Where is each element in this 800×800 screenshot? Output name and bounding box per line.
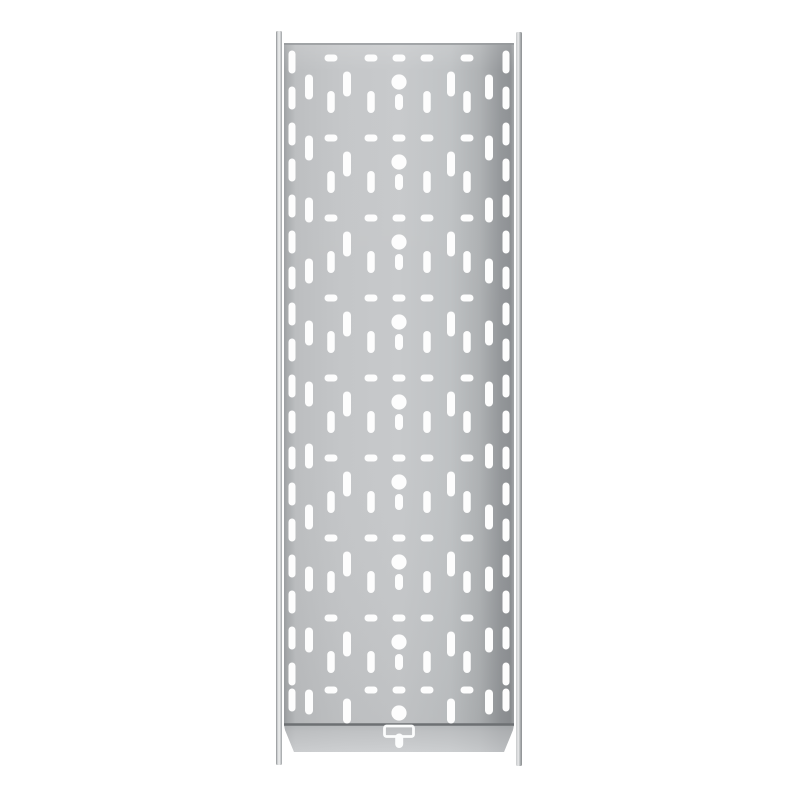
perforation-dash xyxy=(393,215,406,222)
perforation-slot xyxy=(503,627,510,650)
perforation-slot xyxy=(343,699,351,724)
perforation-slot xyxy=(423,171,431,193)
perforation-dash xyxy=(325,687,338,694)
perforation-slot xyxy=(305,321,313,346)
perforation-slot xyxy=(423,251,431,273)
perforation-slot xyxy=(503,689,510,712)
perforation-slot xyxy=(463,91,471,113)
perforation-slot xyxy=(503,123,510,146)
perforation-dash xyxy=(421,135,434,142)
perforation-dash xyxy=(393,687,406,694)
perforation-slot xyxy=(485,628,493,653)
perforation-slot xyxy=(343,312,351,337)
perforation-slot xyxy=(367,651,375,673)
perforation-slot xyxy=(463,571,471,593)
perforation-slot xyxy=(327,651,335,673)
perforation-dash xyxy=(325,295,338,302)
perforation-slot xyxy=(289,663,296,686)
perforation-slot xyxy=(305,136,313,161)
perforation-slot xyxy=(367,91,375,113)
perforation-dash xyxy=(393,55,406,62)
perforation-slot xyxy=(485,136,493,161)
perforation-slot xyxy=(447,312,455,337)
perforation-slot xyxy=(289,483,296,506)
perforation-slot xyxy=(463,411,471,433)
perforation-slot xyxy=(305,198,313,223)
perforation-slot xyxy=(503,195,510,218)
perforation-center-slot xyxy=(395,414,403,430)
mounting-tab-slot-stem xyxy=(395,734,403,749)
perforation-slot xyxy=(305,444,313,469)
perforation-slot xyxy=(289,591,296,614)
product-image xyxy=(0,0,800,800)
perforation-dash xyxy=(365,687,378,694)
perforation-dash xyxy=(393,535,406,542)
perforation-slot xyxy=(367,571,375,593)
perforation-slot xyxy=(289,123,296,146)
perforation-dash xyxy=(325,215,338,222)
perforation-slot xyxy=(503,87,510,110)
tray-side-rail-left xyxy=(276,31,282,765)
perforation-slot xyxy=(485,505,493,530)
perforation-slot xyxy=(289,375,296,398)
perforation-center-slot xyxy=(395,174,403,190)
perforation-slot xyxy=(367,251,375,273)
perforation-slot xyxy=(503,375,510,398)
perforation-slot xyxy=(289,159,296,182)
perforation-slot xyxy=(289,87,296,110)
perforation-dash xyxy=(461,687,474,694)
perforation-slot xyxy=(327,571,335,593)
perforation-slot xyxy=(485,444,493,469)
perforation-slot xyxy=(343,72,351,97)
perforation-slot xyxy=(367,411,375,433)
perforation-slot xyxy=(447,552,455,577)
perforation-dash xyxy=(461,55,474,62)
perforation-slot xyxy=(289,339,296,362)
perforation-dash xyxy=(393,455,406,462)
perforation-slot xyxy=(503,267,510,290)
perforation-hole-circle xyxy=(391,394,406,409)
perforation-dash xyxy=(365,615,378,622)
perforation-dash xyxy=(365,375,378,382)
perforation-slot xyxy=(463,651,471,673)
perforation-slot xyxy=(289,447,296,470)
perforation-slot xyxy=(423,491,431,513)
perforation-dash xyxy=(393,375,406,382)
perforation-slot xyxy=(503,483,510,506)
perforation-slot xyxy=(485,321,493,346)
perforation-slot xyxy=(503,159,510,182)
perforation-dash xyxy=(325,55,338,62)
perforation-slot xyxy=(305,567,313,592)
perforation-slot xyxy=(503,591,510,614)
cable-tray xyxy=(276,31,522,766)
perforation-dash xyxy=(461,615,474,622)
perforation-slot xyxy=(503,411,510,434)
perforation-dash xyxy=(325,455,338,462)
perforation-slot xyxy=(485,198,493,223)
perforation-slot xyxy=(343,392,351,417)
tray-plate-sheen xyxy=(284,43,514,725)
perforation-center-slot xyxy=(395,254,403,270)
perforation-dash xyxy=(325,375,338,382)
perforation-dash xyxy=(365,455,378,462)
perforation-slot xyxy=(503,51,510,74)
perforation-dash xyxy=(461,215,474,222)
perforation-slot xyxy=(423,91,431,113)
perforation-hole-circle xyxy=(391,74,406,89)
perforation-slot xyxy=(289,303,296,326)
perforation-slot xyxy=(289,51,296,74)
perforation-slot xyxy=(367,491,375,513)
perforation-slot xyxy=(343,552,351,577)
perforation-dash xyxy=(393,295,406,302)
perforation-slot xyxy=(485,75,493,100)
perforation-slot xyxy=(485,690,493,715)
perforation-slot xyxy=(503,519,510,542)
perforation-slot xyxy=(463,251,471,273)
perforation-dash xyxy=(461,135,474,142)
perforation-slot xyxy=(289,519,296,542)
perforation-slot xyxy=(367,331,375,353)
perforation-dash xyxy=(325,135,338,142)
perforation-hole-circle xyxy=(391,234,406,249)
perforation-hole-circle xyxy=(391,154,406,169)
perforation-hole-circle xyxy=(391,554,406,569)
perforation-dash xyxy=(461,375,474,382)
perforation-slot xyxy=(423,651,431,673)
perforation-slot xyxy=(463,171,471,193)
perforation-slot xyxy=(289,411,296,434)
perforation-slot xyxy=(447,699,455,724)
perforation-dash xyxy=(365,215,378,222)
perforation-slot xyxy=(423,571,431,593)
perforation-dash xyxy=(421,215,434,222)
perforation-slot xyxy=(447,232,455,257)
perforation-slot xyxy=(305,628,313,653)
perforation-dash xyxy=(325,535,338,542)
perforation-slot xyxy=(503,447,510,470)
perforation-dash xyxy=(393,135,406,142)
perforation-slot xyxy=(503,555,510,578)
perforation-center-slot xyxy=(395,334,403,350)
perforation-slot xyxy=(423,331,431,353)
perforation-slot xyxy=(343,232,351,257)
perforation-slot xyxy=(503,339,510,362)
perforation-slot xyxy=(485,382,493,407)
perforation-slot xyxy=(447,152,455,177)
perforation-dash xyxy=(325,615,338,622)
perforation-center-slot xyxy=(395,654,403,670)
perforation-hole-circle xyxy=(391,705,406,720)
perforation-slot xyxy=(343,632,351,657)
perforation-slot xyxy=(305,259,313,284)
perforation-slot xyxy=(289,689,296,712)
perforation-hole-circle xyxy=(391,314,406,329)
perforation-slot xyxy=(447,632,455,657)
perforation-slot xyxy=(305,75,313,100)
perforation-dash xyxy=(421,295,434,302)
perforation-slot xyxy=(327,331,335,353)
perforation-slot xyxy=(485,567,493,592)
perforation-slot xyxy=(305,690,313,715)
perforation-slot xyxy=(327,411,335,433)
perforation-dash xyxy=(421,687,434,694)
perforation-dash xyxy=(365,295,378,302)
perforation-slot xyxy=(503,231,510,254)
perforation-center-slot xyxy=(395,494,403,510)
perforation-dash xyxy=(421,615,434,622)
perforation-slot xyxy=(463,331,471,353)
perforation-slot xyxy=(447,392,455,417)
perforation-slot xyxy=(327,491,335,513)
perforation-slot xyxy=(447,72,455,97)
perforation-slot xyxy=(485,259,493,284)
perforation-dash xyxy=(365,135,378,142)
perforation-slot xyxy=(327,171,335,193)
perforation-slot xyxy=(289,555,296,578)
perforation-slot xyxy=(463,491,471,513)
perforation-dash xyxy=(421,55,434,62)
perforation-slot xyxy=(423,411,431,433)
perforation-dash xyxy=(365,535,378,542)
perforation-center-slot xyxy=(395,574,403,590)
perforation-slot xyxy=(305,382,313,407)
perforation-slot xyxy=(289,231,296,254)
perforation-slot xyxy=(343,472,351,497)
perforation-slot xyxy=(289,627,296,650)
perforation-hole-circle xyxy=(391,634,406,649)
tray-side-rail-right xyxy=(516,32,522,766)
perforation-slot xyxy=(327,251,335,273)
perforation-slot xyxy=(305,505,313,530)
perforation-center-slot xyxy=(395,94,403,110)
perforation-dash xyxy=(421,375,434,382)
perforation-slot xyxy=(327,91,335,113)
perforation-slot xyxy=(289,267,296,290)
perforation-dash xyxy=(365,55,378,62)
perforation-slot xyxy=(503,303,510,326)
perforation-slot xyxy=(503,663,510,686)
perforation-dash xyxy=(421,455,434,462)
perforation-slot xyxy=(289,195,296,218)
perforation-slot xyxy=(367,171,375,193)
perforation-dash xyxy=(461,295,474,302)
perforation-hole-circle xyxy=(391,474,406,489)
cable-tray-graphic xyxy=(0,0,800,800)
perforation-slot xyxy=(447,472,455,497)
perforation-dash xyxy=(421,535,434,542)
perforation-slot xyxy=(343,152,351,177)
perforation-dash xyxy=(393,615,406,622)
perforation-dash xyxy=(461,535,474,542)
perforation-dash xyxy=(461,455,474,462)
